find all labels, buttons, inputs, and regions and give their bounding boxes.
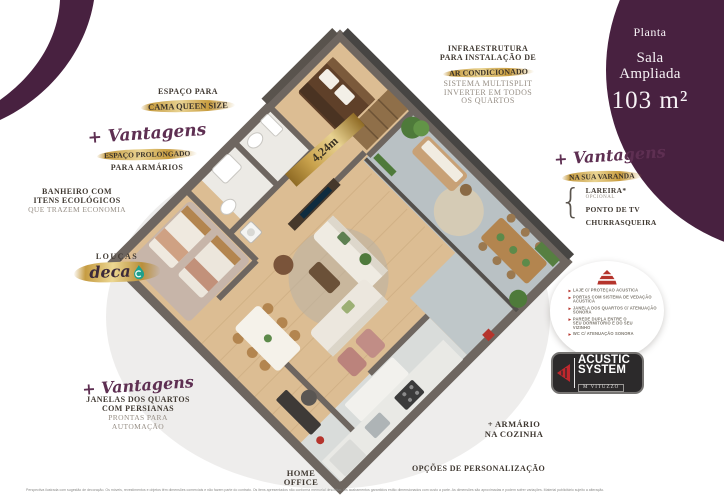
armario-line2: NA COZINHA [476,430,552,440]
janelas-line3: PRONTAS PARA [78,413,198,422]
annotation-personalizacao: OPÇÕES DE PERSONALIZAÇÃO [412,464,545,473]
janelas-line2: COM PERSIANAS [78,404,198,413]
varanda-item: CHURRASQUEIRA [586,219,657,227]
acoustic-logo-line2: SYSTEM [578,364,630,375]
gold-highlight: NA SUA VARANDA [562,170,642,183]
logo-divider [574,358,575,388]
gold-highlight: CAMA QUEEN SIZE [141,99,235,113]
annotation-janelas: + Vantagens JANELAS DOS QUARTOS COM PERS… [78,376,198,431]
annotation-home-office: HOME OFFICE [276,469,326,487]
varanda-item: PONTO DE TV [586,206,657,214]
armarios-line2: PARA ARMÁRIOS [84,163,210,172]
plan-badge: Planta Sala Ampliada 103 m² [598,25,702,115]
annotation-banheiro: BANHEIRO COM ITENS ECOLÓGICOS QUE TRAZEM… [24,187,130,214]
annotation-armario-cozinha: + ARMÁRIO NA COZINHA [476,420,552,439]
plan-badge-title-1: Sala [598,50,702,66]
bullet-arrow-icon [568,307,571,310]
varanda-item-sub: OPCIONAL [586,195,657,201]
acoustic-feature-item: WC C/ ATENUAÇÃO SONORA [568,333,656,337]
acoustic-stack-icon [597,270,617,285]
acoustic-system-logo: ACUSTIC SYSTEM M VITUZZO [551,352,644,394]
vantagens-script: + Vantagens [553,142,666,169]
acoustic-logo-icon [556,362,572,384]
annotation-ar-condicionado: INFRAESTRUTURA PARA INSTALAÇÃO DE AR CON… [432,45,544,106]
bullet-arrow-icon [568,318,571,321]
marketing-slide: { "colors": { "purple": "#482140", "scri… [0,0,724,503]
deca-logo: deca [89,264,131,281]
ac-line6: OS QUARTOS [432,97,544,106]
queen-line1: ESPAÇO PARA [118,87,258,96]
banheiro-line2: ITENS ECOLÓGICOS [24,196,130,205]
deca-drop-icon [132,264,145,279]
bullet-arrow-icon [568,333,571,336]
loucas-label: LOUÇAS [74,252,160,261]
annotation-queen-bed: ESPAÇO PARA CAMA QUEEN SIZE [118,87,258,114]
plan-badge-area: 103 m² [598,87,702,115]
corner-swoosh-top-left [0,0,94,120]
acoustic-feature-item: PAREDE DUPLA ENTRE O SEU DORMITÓRIO E DO… [568,317,656,330]
brace-icon: { [560,184,582,220]
disclaimer-text: Perspectiva ilustrada com sugestão de de… [26,488,684,492]
gold-highlight: ESPAÇO PROLONGADO [97,148,198,162]
acoustic-feature-item: JANELA DOS QUARTOS C/ ATENUAÇÃO SONORA [568,306,656,315]
annotation-varanda: + Vantagens NA SUA VARANDA { LAREIRA* OP… [554,146,674,232]
annotation-armarios: + Vantagens ESPAÇO PROLONGADO PARA ARMÁR… [84,124,210,172]
gold-highlight: AR CONDICIONADO [442,67,533,78]
annotation-loucas-deca: LOUÇAS deca [74,252,160,282]
gold-brush: deca [74,261,161,284]
banheiro-line3: QUE TRAZEM ECONOMIA [24,205,130,214]
acoustic-logo-brand: M VITUZZO [578,384,624,392]
home-office-line2: OFFICE [276,478,326,487]
varanda-item: LAREIRA* OPCIONAL [586,187,657,201]
plan-badge-kicker: Planta [598,25,702,40]
plan-badge-title-2: Ampliada [598,66,702,82]
acoustic-feature-item: PORTAS COM SISTEMA DE VEDAÇÃO ACÚSTICA [568,295,656,304]
bullet-arrow-icon [568,290,571,293]
ac-line2: PARA INSTALAÇÃO DE [432,54,544,63]
acoustic-feature-item: LAJE C/ PROTEÇÃO ACÚSTICA [568,289,656,293]
acoustic-features-circle: LAJE C/ PROTEÇÃO ACÚSTICA PORTAS COM SIS… [550,261,664,360]
janelas-line4: AUTOMAÇÃO [78,422,198,431]
banheiro-line1: BANHEIRO COM [24,187,130,196]
bullet-arrow-icon [568,296,571,299]
